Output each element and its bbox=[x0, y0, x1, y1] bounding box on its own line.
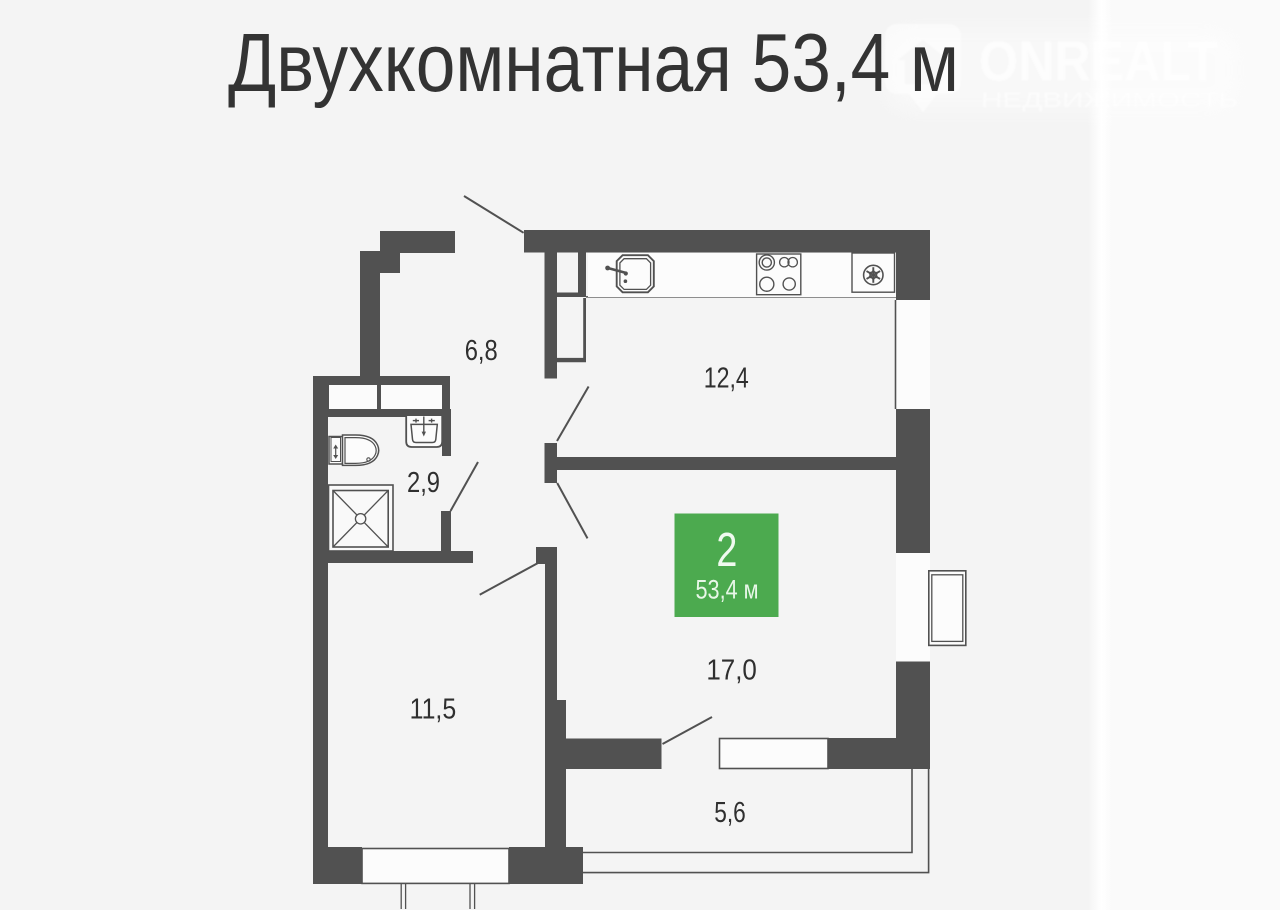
svg-text:5,6: 5,6 bbox=[714, 797, 746, 829]
svg-text:12,4: 12,4 bbox=[704, 362, 749, 394]
svg-text:11,5: 11,5 bbox=[410, 694, 457, 726]
svg-text:НЕДВИЖИМОСТЬ: НЕДВИЖИМОСТЬ bbox=[981, 88, 1238, 112]
svg-text:53,4 м: 53,4 м bbox=[696, 575, 759, 605]
svg-text:ONREALT: ONREALT bbox=[979, 30, 1218, 93]
svg-text:2: 2 bbox=[716, 524, 737, 577]
svg-text:Двухкомнатная 53,4 м: Двухкомнатная 53,4 м bbox=[228, 16, 959, 109]
svg-text:2,9: 2,9 bbox=[407, 467, 440, 499]
svg-text:6,8: 6,8 bbox=[465, 335, 498, 367]
svg-text:17,0: 17,0 bbox=[706, 654, 757, 686]
